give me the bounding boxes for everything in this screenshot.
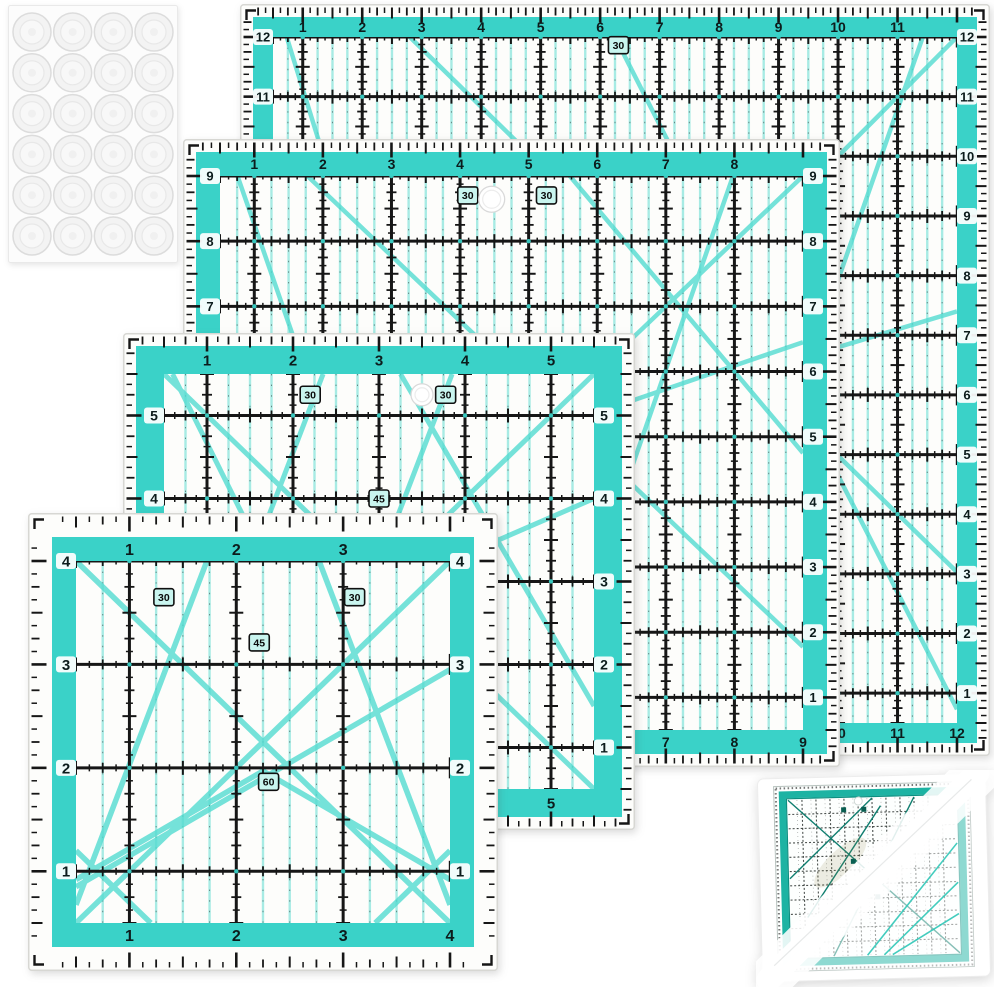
svg-text:30: 30 <box>613 40 625 52</box>
svg-text:9: 9 <box>809 169 816 184</box>
svg-text:12: 12 <box>960 30 974 45</box>
angle-badge-30: 30 <box>345 589 365 606</box>
grip-dot <box>54 135 92 173</box>
svg-text:8: 8 <box>963 268 970 283</box>
hanging-hole <box>479 186 505 212</box>
svg-text:2: 2 <box>809 625 816 640</box>
svg-text:30: 30 <box>462 190 474 202</box>
grip-dot <box>13 135 51 173</box>
svg-text:1: 1 <box>299 19 307 35</box>
angle-badge-30: 30 <box>458 187 478 204</box>
grip-dot <box>94 13 132 51</box>
svg-text:7: 7 <box>963 328 970 343</box>
svg-text:8: 8 <box>731 156 739 172</box>
product-photo-quilting-ruler-set: 1234567891011123456789101112121211111010… <box>0 0 994 987</box>
angle-badge-30: 30 <box>300 386 320 403</box>
grip-dot <box>94 217 132 255</box>
ruler-4-5-inch: 12312344433221130304560 <box>28 513 498 971</box>
grip-dot <box>54 13 92 51</box>
svg-text:30: 30 <box>541 190 553 202</box>
svg-text:6: 6 <box>963 388 970 403</box>
svg-text:7: 7 <box>662 156 670 172</box>
svg-text:2: 2 <box>319 156 327 172</box>
grip-dot <box>135 217 173 255</box>
grid-marker <box>851 859 856 864</box>
svg-text:11: 11 <box>256 89 270 104</box>
svg-text:6: 6 <box>593 156 601 172</box>
hanging-hole <box>854 797 862 805</box>
svg-text:5: 5 <box>537 19 545 35</box>
svg-text:10: 10 <box>960 149 974 164</box>
svg-text:11: 11 <box>960 89 974 104</box>
grip-dot <box>94 54 132 92</box>
svg-text:4: 4 <box>963 507 971 522</box>
angle-badge-60: 60 <box>259 773 279 790</box>
grip-dot-sheet <box>8 5 178 263</box>
grip-dot <box>54 217 92 255</box>
svg-text:7: 7 <box>662 734 670 750</box>
svg-text:5: 5 <box>809 429 816 444</box>
svg-text:6: 6 <box>809 364 816 379</box>
svg-text:8: 8 <box>206 234 213 249</box>
ruler-4-5-inch-svg: 12312344433221130304560 <box>28 513 498 971</box>
svg-text:7: 7 <box>206 299 213 314</box>
grip-dot <box>13 217 51 255</box>
svg-text:7: 7 <box>809 299 816 314</box>
svg-text:9: 9 <box>799 734 807 750</box>
angle-badge-30: 30 <box>154 589 174 606</box>
grip-dot <box>94 176 132 214</box>
svg-text:2: 2 <box>963 626 970 641</box>
hanging-hole <box>411 384 433 406</box>
svg-text:6: 6 <box>596 19 604 35</box>
svg-text:3: 3 <box>388 156 396 172</box>
grip-dot <box>135 54 173 92</box>
svg-text:10: 10 <box>830 19 846 35</box>
angle-badge-45: 45 <box>249 634 269 651</box>
svg-text:5: 5 <box>525 156 533 172</box>
grip-dot <box>94 135 132 173</box>
svg-text:3: 3 <box>418 19 426 35</box>
svg-text:11: 11 <box>890 19 905 35</box>
svg-text:9: 9 <box>963 209 970 224</box>
svg-text:11: 11 <box>890 725 905 741</box>
grip-dot <box>135 135 173 173</box>
svg-text:8: 8 <box>731 734 739 750</box>
small-square-ruler-svg <box>756 770 994 987</box>
angle-badge-30: 30 <box>608 37 628 54</box>
grip-dot <box>13 54 51 92</box>
angle-badge-30: 30 <box>536 187 556 204</box>
grip-dot <box>135 13 173 51</box>
grip-dot <box>13 176 51 214</box>
svg-text:1: 1 <box>809 690 816 705</box>
svg-text:4: 4 <box>456 156 464 172</box>
svg-text:8: 8 <box>715 19 723 35</box>
svg-text:1: 1 <box>963 686 970 701</box>
svg-text:9: 9 <box>206 169 213 184</box>
grip-dot <box>54 54 92 92</box>
grip-dot-sheet-svg <box>8 5 178 263</box>
grip-dot <box>13 95 51 133</box>
svg-text:12: 12 <box>949 725 965 741</box>
angle-badge-45: 45 <box>369 490 389 507</box>
svg-text:7: 7 <box>656 19 664 35</box>
grid-marker <box>861 807 866 812</box>
grip-dot <box>135 176 173 214</box>
svg-text:4: 4 <box>809 495 817 510</box>
grip-dot <box>94 95 132 133</box>
svg-text:1: 1 <box>250 156 258 172</box>
svg-text:3: 3 <box>809 560 816 575</box>
grip-dot <box>54 95 92 133</box>
svg-text:2: 2 <box>358 19 366 35</box>
small-square-ruler <box>756 770 994 987</box>
grip-dot <box>54 176 92 214</box>
svg-text:4: 4 <box>477 19 485 35</box>
svg-text:12: 12 <box>256 30 270 45</box>
svg-text:3: 3 <box>963 567 970 582</box>
svg-text:9: 9 <box>775 19 783 35</box>
angle-badge-30: 30 <box>436 386 456 403</box>
svg-text:5: 5 <box>963 447 970 462</box>
grip-dot <box>13 13 51 51</box>
grip-dot <box>135 95 173 133</box>
grid-marker <box>841 807 846 812</box>
svg-text:8: 8 <box>809 234 816 249</box>
